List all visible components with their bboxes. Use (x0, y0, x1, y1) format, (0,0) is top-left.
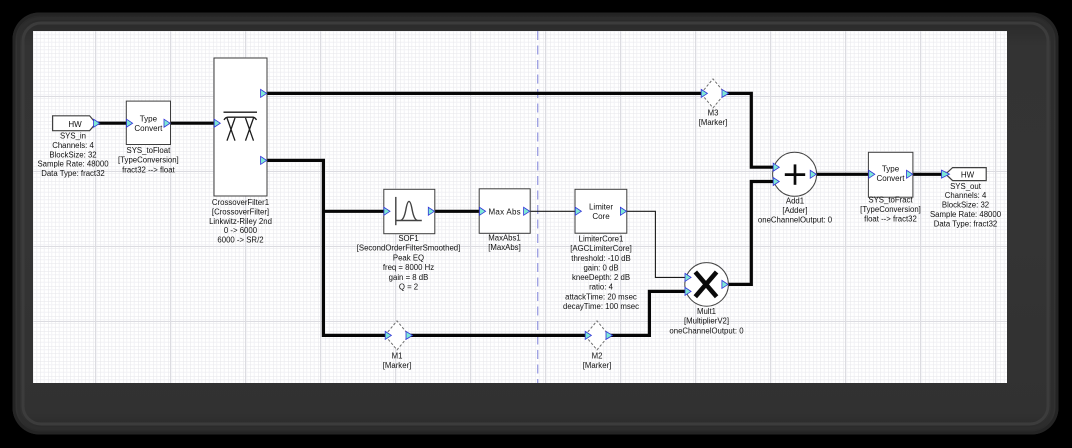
svg-text:Sample Rate: 48000: Sample Rate: 48000 (37, 160, 109, 169)
svg-text:SYS_toFloat: SYS_toFloat (127, 146, 172, 155)
svg-text:SOF1: SOF1 (398, 234, 418, 243)
svg-text:[CrossoverFilter]: [CrossoverFilter] (212, 207, 269, 216)
svg-text:Limiter: Limiter (589, 202, 613, 211)
svg-text:BlockSize: 32: BlockSize: 32 (942, 201, 989, 210)
svg-text:Mult1: Mult1 (697, 307, 716, 316)
svg-text:Q = 2: Q = 2 (399, 283, 418, 292)
svg-text:HW: HW (961, 171, 975, 180)
svg-text:6000 -> SR/2: 6000 -> SR/2 (217, 236, 263, 245)
svg-text:[AGCLimiterCore]: [AGCLimiterCore] (570, 244, 632, 253)
svg-text:[MaxAbs]: [MaxAbs] (488, 243, 521, 252)
svg-text:Type: Type (882, 165, 900, 174)
svg-text:ratio: 4: ratio: 4 (589, 283, 613, 292)
svg-text:Data Type: fract32: Data Type: fract32 (934, 219, 998, 228)
svg-text:Add1: Add1 (786, 197, 804, 206)
svg-text:BlockSize: 32: BlockSize: 32 (49, 150, 96, 159)
svg-text:gain: 0 dB: gain: 0 dB (583, 264, 618, 273)
svg-text:Convert: Convert (134, 124, 163, 133)
svg-text:SYS_toFract: SYS_toFract (868, 196, 913, 205)
svg-text:Max Abs: Max Abs (488, 207, 520, 216)
svg-text:[TypeConversion]: [TypeConversion] (860, 205, 921, 214)
svg-text:[SecondOrderFilterSmoothed]: [SecondOrderFilterSmoothed] (357, 244, 461, 253)
svg-text:Sample Rate: 48000: Sample Rate: 48000 (930, 210, 1002, 219)
svg-text:attackTime: 20 msec: attackTime: 20 msec (565, 293, 637, 302)
svg-text:oneChannelOutput: 0: oneChannelOutput: 0 (669, 326, 744, 335)
svg-text:Channels: 4: Channels: 4 (52, 141, 94, 150)
svg-text:MaxAbs1: MaxAbs1 (488, 234, 521, 243)
svg-text:Data Type: fract32: Data Type: fract32 (41, 169, 105, 178)
svg-text:freq = 8000 Hz: freq = 8000 Hz (383, 263, 434, 272)
svg-text:[MultiplierV2]: [MultiplierV2] (684, 317, 729, 326)
svg-text:threshold: -10 dB: threshold: -10 dB (571, 254, 630, 263)
svg-text:M1: M1 (392, 351, 403, 360)
svg-text:SYS_in: SYS_in (60, 132, 86, 141)
svg-text:Type: Type (140, 115, 158, 124)
svg-text:float --> fract32: float --> fract32 (864, 215, 917, 224)
svg-text:Peak EQ: Peak EQ (393, 253, 424, 262)
svg-text:[TypeConversion]: [TypeConversion] (118, 156, 179, 165)
svg-text:LimiterCore1: LimiterCore1 (579, 235, 624, 244)
svg-text:M3: M3 (708, 109, 719, 118)
svg-text:[Marker]: [Marker] (583, 361, 612, 370)
svg-text:Convert: Convert (876, 174, 905, 183)
svg-text:HW: HW (68, 120, 82, 129)
svg-text:[Marker]: [Marker] (383, 361, 412, 370)
svg-text:Core: Core (592, 212, 610, 221)
svg-text:[Adder]: [Adder] (782, 206, 807, 215)
svg-text:kneeDepth: 2 dB: kneeDepth: 2 dB (572, 273, 630, 282)
svg-text:Linkwitz-Riley 2nd: Linkwitz-Riley 2nd (209, 217, 272, 226)
svg-text:oneChannelOutput: 0: oneChannelOutput: 0 (758, 216, 833, 225)
svg-text:SYS_out: SYS_out (950, 182, 982, 191)
svg-text:M2: M2 (592, 351, 603, 360)
svg-text:[Marker]: [Marker] (699, 118, 728, 127)
svg-text:gain = 8 dB: gain = 8 dB (389, 273, 429, 282)
svg-text:Channels: 4: Channels: 4 (945, 191, 987, 200)
svg-text:decayTime: 100 msec: decayTime: 100 msec (563, 302, 639, 311)
svg-text:fract32 --> float: fract32 --> float (122, 165, 175, 174)
svg-text:0 -> 6000: 0 -> 6000 (224, 226, 258, 235)
svg-text:CrossoverFilter1: CrossoverFilter1 (212, 198, 269, 207)
